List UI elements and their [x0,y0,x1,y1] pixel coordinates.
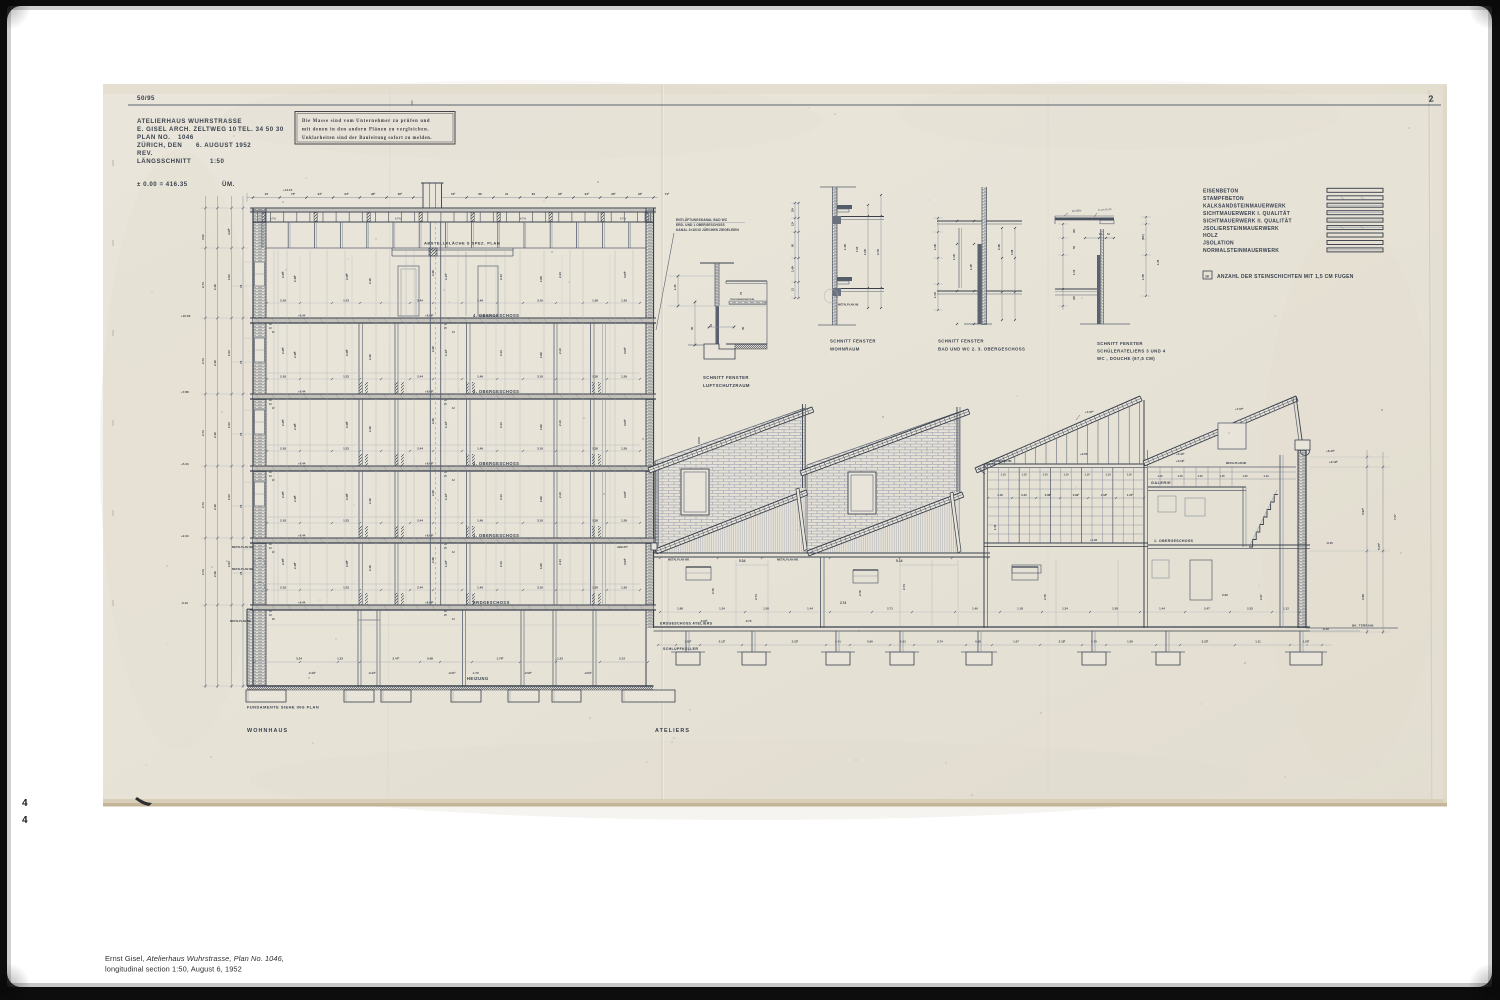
svg-text:1.29: 1.29 [621,447,627,451]
svg-text:2.45ᵏ: 2.45ᵏ [281,346,285,354]
svg-text:56: 56 [1072,246,1076,249]
svg-text:-0.44ᵏ: -0.44ᵏ [368,671,377,675]
svg-text:1.13ᵏ: 1.13ᵏ [952,254,956,260]
svg-text:1.23: 1.23 [343,375,349,379]
svg-text:E. GISEL ARCH. ZELTWEG 10: E. GISEL ARCH. ZELTWEG 10 [137,126,237,133]
svg-text:2.76: 2.76 [1043,594,1047,600]
svg-text:BETONWAND NR.: BETONWAND NR. [990,459,1012,463]
svg-text:BAD UND WC 2. 3. OBERGESCHOSS: BAD UND WC 2. 3. OBERGESCHOSS [938,347,1025,352]
svg-text:2.18: 2.18 [368,565,372,571]
svg-text:1.45: 1.45 [1242,474,1248,478]
svg-text:74: 74 [239,360,243,364]
svg-text:1.15: 1.15 [1157,474,1163,478]
svg-text:0.40: 0.40 [1021,493,1027,497]
svg-text:1.40ᵏ: 1.40ᵏ [791,266,795,272]
svg-text:2.18ᵏ: 2.18ᵏ [293,422,297,430]
svg-text:2.18: 2.18 [213,571,217,577]
svg-text:+8.68ᵏ: +8.68ᵏ [425,314,434,318]
svg-text:1.58: 1.58 [1112,607,1118,611]
svg-text:1.10ᵏ: 1.10ᵏ [1127,493,1133,497]
svg-text:2.14: 2.14 [499,350,503,356]
svg-text:2.14: 2.14 [558,420,562,426]
svg-text:1.49: 1.49 [477,586,483,590]
svg-text:2.14: 2.14 [558,559,562,565]
svg-text:1.13ᵏ: 1.13ᵏ [444,272,448,280]
svg-text:35: 35 [741,326,745,330]
svg-text:1.49: 1.49 [477,519,483,523]
svg-text:3.03ᵏ: 3.03ᵏ [623,346,627,354]
svg-text:METALPLAN NR.: METALPLAN NR. [230,619,252,623]
svg-text:5.05ᵏ: 5.05ᵏ [1377,542,1381,550]
svg-text:2.18: 2.18 [368,426,372,432]
svg-text:2.18: 2.18 [213,432,217,438]
svg-text:10: 10 [1107,232,1110,236]
svg-text:1.10: 1.10 [1021,473,1027,477]
svg-text:1.15: 1.15 [1219,474,1225,478]
svg-text:1.88: 1.88 [539,276,543,282]
svg-text:2.38ᵏ: 2.38ᵏ [345,492,349,500]
svg-text:6.7%: 6.7% [520,217,527,221]
svg-text:2.23ᵏ: 2.23ᵏ [1303,640,1311,644]
svg-text:1.10: 1.10 [1063,473,1069,477]
svg-text:1.29: 1.29 [621,375,627,379]
svg-text:PLAN NO.: PLAN NO. [137,134,171,141]
svg-text:-0.13: -0.13 [181,601,188,605]
svg-text:2.18: 2.18 [368,498,372,504]
svg-text:88: 88 [478,192,482,196]
svg-text:1.07: 1.07 [1013,640,1019,644]
svg-text:3.10: 3.10 [537,586,543,590]
svg-text:+2.05: +2.05 [1080,452,1088,456]
svg-text:2.18: 2.18 [368,354,372,360]
svg-text:+1.03: +1.03 [1090,538,1098,542]
svg-text:STAMPFBETON: STAMPFBETON [1203,196,1244,202]
svg-text:1.38: 1.38 [592,299,598,303]
svg-text:2.38ᵏ: 2.38ᵏ [345,272,349,280]
svg-text:1.49: 1.49 [477,299,483,303]
svg-text:+14.15: +14.15 [283,188,293,192]
svg-text:1.13ᵏ: 1.13ᵏ [444,559,448,567]
svg-text:0.98: 0.98 [427,657,433,661]
svg-text:84: 84 [532,192,536,196]
svg-text:1.23: 1.23 [343,299,349,303]
svg-text:+8.44: +8.44 [298,390,306,394]
svg-text:FUNDAMENTE SIEHE ING PLAN: FUNDAMENTE SIEHE ING PLAN [247,705,319,710]
svg-text:1. OBERGESCHOSS: 1. OBERGESCHOSS [1154,539,1194,543]
svg-text:3.10: 3.10 [537,447,543,451]
svg-text:45ᵏ: 45ᵏ [1072,229,1076,233]
svg-text:2.74: 2.74 [937,640,943,644]
svg-text:+7.88: +7.88 [181,390,189,394]
svg-text:-2.52ᵏ: -2.52ᵏ [524,671,533,675]
svg-text:6.7%: 6.7% [620,217,627,221]
svg-text:1.53: 1.53 [227,561,231,567]
svg-text:80: 80 [791,244,795,247]
svg-text:4: 4 [22,815,28,826]
svg-text:3.03ᵏ: 3.03ᵏ [623,270,627,278]
svg-text:1.44: 1.44 [807,607,813,611]
svg-text:16: 16 [1205,275,1209,279]
svg-text:3.03ᵏ: 3.03ᵏ [623,557,627,565]
svg-text:1.18ᵏ: 1.18ᵏ [933,244,937,250]
svg-text:-0.70: -0.70 [745,619,752,623]
svg-text:2.44: 2.44 [417,586,423,590]
svg-text:1.23: 1.23 [343,519,349,523]
svg-text:+2.19ᵏ: +2.19ᵏ [1329,460,1339,464]
svg-text:-2.21ᵏ: -2.21ᵏ [448,671,457,675]
svg-text:REV.: REV. [137,150,153,157]
svg-text:2.76: 2.76 [858,590,862,596]
svg-text:-1.70: -1.70 [472,671,479,675]
svg-text:longitudinal section 1:50, Aug: longitudinal section 1:50, August 6, 195… [105,965,242,974]
svg-text:ENTLÜFTUNGSKANAL BAD WC: ENTLÜFTUNGSKANAL BAD WC [676,217,728,222]
svg-text:2.74: 2.74 [201,282,205,288]
svg-text:2.23ᵏ: 2.23ᵏ [792,640,800,644]
svg-text:6.7%: 6.7% [395,217,402,221]
svg-text:WOHNRAUM: WOHNRAUM [830,347,860,352]
svg-text:1.10: 1.10 [1072,269,1076,275]
svg-text:2.74: 2.74 [840,601,846,605]
svg-text:1:50: 1:50 [210,158,224,165]
svg-text:2.44: 2.44 [417,519,423,523]
svg-text:TEL. 34 50 30: TEL. 34 50 30 [238,126,284,133]
svg-text:+8.68ᵏ: +8.68ᵏ [425,462,434,466]
svg-text:2.38ᵏ: 2.38ᵏ [345,348,349,356]
svg-text:SCHNITT FENSTER: SCHNITT FENSTER [938,339,984,344]
svg-text:-2.64ᵏ: -2.64ᵏ [584,671,593,675]
svg-text:2.98: 2.98 [1361,594,1365,600]
svg-text:Ernst Gisel, Atelierhaus Wuhrs: Ernst Gisel, Atelierhaus Wuhrstrasse, Pl… [105,954,284,963]
svg-text:2.12ᵏ: 2.12ᵏ [719,640,727,644]
svg-text:METALPLAN 98.: METALPLAN 98. [838,303,859,307]
svg-text:2.14: 2.14 [499,422,503,428]
svg-text:2.48: 2.48 [431,557,435,563]
svg-text:HOLZ: HOLZ [1203,233,1218,239]
svg-text:75: 75 [739,291,743,295]
svg-text:2.76: 2.76 [711,588,715,594]
svg-text:2.45ᵏ: 2.45ᵏ [281,490,285,498]
svg-text:12ᵏ: 12ᵏ [791,222,795,226]
svg-text:2.18ᵏ: 2.18ᵏ [1059,640,1067,644]
svg-text:1.18: 1.18 [1017,607,1023,611]
svg-text:1.10: 1.10 [1126,473,1132,477]
svg-text:4: 4 [22,798,28,809]
svg-text:1.29: 1.29 [621,519,627,523]
svg-text:NORMALSTEINMAUERWERK: NORMALSTEINMAUERWERK [1203,248,1279,254]
svg-text:GALERIE: GALERIE [1151,480,1171,485]
svg-text:2.47: 2.47 [1204,607,1210,611]
svg-text:METALPLAN NR.: METALPLAN NR. [232,545,254,549]
svg-text:+8.44: +8.44 [298,601,306,605]
svg-text:1.10: 1.10 [1000,473,1006,477]
svg-text:2.48: 2.48 [431,490,435,496]
svg-text:2.45ᵏ: 2.45ᵏ [281,270,285,278]
svg-text:2.44: 2.44 [417,299,423,303]
svg-text:1.40: 1.40 [972,607,978,611]
svg-text:2.14: 2.14 [499,494,503,500]
svg-text:2.13: 2.13 [619,657,625,661]
svg-text:± 0.00 = 416.35: ± 0.00 = 416.35 [137,181,188,188]
svg-text:1.53: 1.53 [227,494,231,500]
svg-text:LÄNGSSCHNITT: LÄNGSSCHNITT [137,158,191,165]
svg-text:2.48: 2.48 [431,346,435,352]
svg-text:2.32: 2.32 [1247,607,1253,611]
svg-text:+8.44: +8.44 [298,534,306,538]
svg-text:1.88: 1.88 [539,496,543,502]
svg-text:METALPLAN NR: METALPLAN NR [1226,461,1246,465]
svg-text:1.53: 1.53 [227,350,231,356]
svg-text:1.23: 1.23 [337,657,343,661]
svg-text:0.99ᵏ: 0.99ᵏ [1073,493,1079,497]
svg-text:1.53: 1.53 [227,422,231,428]
svg-text:(95ᵏ): (95ᵏ) [1141,234,1145,240]
svg-text:2.18: 2.18 [213,284,217,290]
svg-text:2.18: 2.18 [280,519,286,523]
svg-text:1.38: 1.38 [592,586,598,590]
svg-text:2.45ᵏ: 2.45ᵏ [281,557,285,565]
svg-text:1.23: 1.23 [557,657,563,661]
svg-text:2.44: 2.44 [417,375,423,379]
svg-text:6.7%: 6.7% [270,217,277,221]
svg-text:SCHNITT FENSTER: SCHNITT FENSTER [1097,341,1143,346]
svg-text:3.03ᵏ: 3.03ᵏ [623,490,627,498]
svg-text:1.13: 1.13 [1263,474,1269,478]
svg-text:1.76ᵏ: 1.76ᵏ [497,657,505,661]
svg-text:74: 74 [239,284,243,288]
svg-text:1.45: 1.45 [993,524,997,530]
svg-text:12: 12 [791,288,795,291]
svg-text:1.15: 1.15 [1177,474,1183,478]
svg-text:1.10: 1.10 [1105,473,1111,477]
svg-text:6. AUGUST 1952: 6. AUGUST 1952 [196,142,251,149]
svg-text:LUFTSCHUTZRAUM: LUFTSCHUTZRAUM [703,383,750,388]
svg-text:-2.43ᵏ: -2.43ᵏ [308,671,317,675]
svg-text:ATELIERS: ATELIERS [655,728,690,734]
svg-text:+6.44ᵏ: +6.44ᵏ [1326,449,1336,453]
svg-text:BK. TERRAIN: BK. TERRAIN [1352,624,1374,628]
svg-text:0.90: 0.90 [867,640,873,644]
svg-text:43ᵏ: 43ᵏ [1072,296,1076,300]
svg-text:2.18: 2.18 [213,360,217,366]
svg-text:74: 74 [239,504,243,508]
svg-text:3.23ᵏ: 3.23ᵏ [1202,640,1210,644]
svg-text:1.88: 1.88 [539,424,543,430]
svg-text:1.34: 1.34 [719,607,725,611]
svg-text:1.38: 1.38 [592,447,598,451]
svg-text:1.10: 1.10 [1042,473,1048,477]
svg-text:2.47ᵏ: 2.47ᵏ [393,657,401,661]
svg-text:2.18ᵏ: 2.18ᵏ [293,494,297,502]
svg-text:2.38ᵏ: 2.38ᵏ [345,559,349,567]
svg-text:1.49: 1.49 [477,447,483,451]
svg-text:7.07: 7.07 [1393,514,1397,520]
svg-text:+2.19ᵏ: +2.19ᵏ [1176,459,1185,463]
svg-text:1.44: 1.44 [1159,607,1165,611]
svg-text:JSOLATION: JSOLATION [1203,241,1234,247]
svg-text:1.03: 1.03 [855,246,859,252]
svg-text:EISENBETON: EISENBETON [1203,189,1239,195]
svg-text:1.49: 1.49 [477,375,483,379]
svg-text:METALPLAN NR.: METALPLAN NR. [777,558,799,562]
svg-text:2.14: 2.14 [499,561,503,567]
svg-text:1.15: 1.15 [1197,474,1203,478]
svg-text:2.32: 2.32 [1222,593,1228,597]
svg-text:1.45: 1.45 [673,284,677,290]
svg-text:5.34: 5.34 [896,559,903,563]
svg-text:2.14: 2.14 [558,492,562,498]
svg-text:2.74: 2.74 [201,569,205,575]
svg-text:HEIZUNG: HEIZUNG [467,676,489,681]
svg-text:2.18: 2.18 [213,504,217,510]
svg-text:SCHÜLERATELIERS 3 UND 4: SCHÜLERATELIERS 3 UND 4 [1097,349,1166,354]
svg-text:+8.68ᵏ: +8.68ᵏ [425,601,434,605]
svg-text:SICHTMAUERWERK II. QUALITÄT: SICHTMAUERWERK II. QUALITÄT [1203,217,1292,224]
svg-text:1.29: 1.29 [621,299,627,303]
svg-text:35: 35 [690,326,694,330]
svg-text:0.98ᵏ: 0.98ᵏ [1045,493,1051,497]
svg-text:2.74: 2.74 [201,358,205,364]
svg-text:2.18ᵏ: 2.18ᵏ [293,561,297,569]
svg-text:+5.44: +5.44 [181,462,189,466]
svg-text:Die Masse sind vom Unternehmer: Die Masse sind vom Unternehmer zu prüfen… [302,119,430,124]
svg-text:1.38: 1.38 [592,519,598,523]
svg-text:1.10: 1.10 [1084,473,1090,477]
svg-text:+8.44: +8.44 [298,314,306,318]
svg-text:ZÜRICH, DEN: ZÜRICH, DEN [137,142,182,149]
svg-text:2.48: 2.48 [431,270,435,276]
svg-text:2.14: 2.14 [558,348,562,354]
svg-text:1.18: 1.18 [997,493,1003,497]
svg-text:1.13ᵏ: 1.13ᵏ [444,420,448,428]
svg-text:2.44: 2.44 [417,447,423,451]
svg-text:Unklarheiten sind der Bauleitu: Unklarheiten sind der Bauleitung sofort … [302,136,432,141]
svg-text:1.13ᵏ: 1.13ᵏ [444,492,448,500]
svg-text:ERD- UND 1 OBERGESCHOSS: ERD- UND 1 OBERGESCHOSS [676,223,725,227]
svg-text:+5.44ᵏ: +5.44ᵏ [1176,452,1185,456]
svg-text:METALPLAN NR.: METALPLAN NR. [668,558,690,562]
svg-text:1.58: 1.58 [763,607,769,611]
svg-text:50/95: 50/95 [137,95,155,102]
svg-text:ANZAHL DER STEINSCHICHTEN M: ANZAHL DER STEINSCHICHTEN MIT 1,5 CM FUG… [1217,274,1354,280]
svg-text:SCHLUPFKELLER: SCHLUPFKELLER [663,647,698,651]
svg-text:2.74: 2.74 [201,502,205,508]
svg-text:4.22ᵏ: 4.22ᵏ [227,227,231,235]
svg-text:2.74: 2.74 [902,584,906,590]
svg-text:1.88: 1.88 [539,352,543,358]
svg-text:2.18ᵏ: 2.18ᵏ [293,274,297,282]
svg-text:SICHTMAUERWERK I. QUALITÄT: SICHTMAUERWERK I. QUALITÄT [1203,210,1290,217]
svg-text:Gefälle: Gefälle [1072,208,1082,213]
svg-text:3.52: 3.52 [201,234,205,240]
svg-text:3.92ᵏ: 3.92ᵏ [1361,507,1365,515]
svg-text:23: 23 [265,192,269,196]
svg-text:1.34: 1.34 [1062,607,1068,611]
svg-text:2.47: 2.47 [1259,594,1263,600]
svg-text:2.18: 2.18 [368,278,372,284]
svg-text:1.29: 1.29 [621,586,627,590]
svg-text:WC , DOUCHE (67,5 CM): WC , DOUCHE (67,5 CM) [1097,356,1155,361]
svg-text:1.45ᵏ: 1.45ᵏ [969,264,973,270]
svg-text:2.14: 2.14 [558,272,562,278]
svg-text:2.73ᵏ: 2.73ᵏ [876,249,880,255]
svg-text:ATELIERHAUS WUHRSTRASSE: ATELIERHAUS WUHRSTRASSE [137,118,242,125]
svg-text:1.38: 1.38 [592,375,598,379]
svg-text:1.35: 1.35 [1156,259,1160,265]
svg-text:1.23: 1.23 [343,586,349,590]
svg-text:1.13ᵏ: 1.13ᵏ [444,348,448,356]
svg-text:mit denen in den andern Plänen: mit denen in den andern Plänen zu vergle… [302,128,429,133]
svg-text:1.88: 1.88 [1010,249,1014,255]
svg-text:2.18: 2.18 [280,375,286,379]
svg-text:2.18: 2.18 [280,299,286,303]
svg-text:2.18ᵏ: 2.18ᵏ [293,350,297,358]
svg-text:1.35ᵏ: 1.35ᵏ [1141,274,1145,280]
svg-text:+8.44: +8.44 [298,462,306,466]
svg-text:TROCKNUNGSDECKEL: TROCKNUNGSDECKEL [730,299,755,301]
svg-text:3.03ᵏ: 3.03ᵏ [623,418,627,426]
svg-text:2.45ᵏ: 2.45ᵏ [281,418,285,426]
svg-text:METALPLAN NR.: METALPLAN NR. [232,567,254,571]
svg-text:SCHNITT FENSTER: SCHNITT FENSTER [703,375,749,380]
svg-text:+10.59: +10.59 [181,314,191,318]
svg-text:1.03ᵏ: 1.03ᵏ [863,249,867,255]
svg-text:-0.15: -0.15 [1326,541,1333,545]
svg-text:20ᵏ: 20ᵏ [791,208,795,212]
svg-text:3.10: 3.10 [537,519,543,523]
svg-text:WOHNHAUS: WOHNHAUS [247,728,288,734]
svg-text:74: 74 [239,571,243,575]
svg-text:+7.07ᵏ: +7.07ᵏ [1235,407,1244,411]
svg-text:3.10: 3.10 [537,299,543,303]
svg-text:+7.07ᵏ: +7.07ᵏ [1085,410,1095,414]
svg-text:2.18: 2.18 [280,447,286,451]
svg-text:SCHNITT FENSTER: SCHNITT FENSTER [830,339,876,344]
svg-text:1.53: 1.53 [227,274,231,280]
svg-text:2.48ᵏ: 2.48ᵏ [997,244,1001,250]
svg-text:2.74: 2.74 [201,430,205,436]
svg-text:ABLUFT: ABLUFT [617,545,628,549]
svg-text:1.45ᵏ: 1.45ᵏ [843,244,847,250]
svg-text:5.34: 5.34 [739,559,746,563]
svg-text:1.11: 1.11 [1255,640,1261,644]
svg-text:2.48: 2.48 [431,418,435,424]
svg-text:+8.68ᵏ: +8.68ᵏ [425,390,434,394]
svg-text:JSOLIERSTEINMAUERWERK: JSOLIERSTEINMAUERWERK [1203,226,1279,232]
svg-text:1046: 1046 [178,134,194,141]
svg-text:3.34: 3.34 [296,657,302,661]
svg-text:3.10: 3.10 [537,375,543,379]
svg-text:ÜM.: ÜM. [222,181,235,188]
svg-text:1.23: 1.23 [343,447,349,451]
svg-text:31: 31 [505,192,509,196]
svg-text:1.98: 1.98 [677,607,683,611]
svg-text:2.74: 2.74 [754,594,758,600]
svg-text:2.14: 2.14 [499,274,503,280]
svg-text:+2.44: +2.44 [181,534,189,538]
svg-text:-0.03ᵏ: -0.03ᵏ [700,619,707,623]
svg-text:1.18ᵏ: 1.18ᵏ [1101,493,1107,497]
svg-text:1.12: 1.12 [1283,607,1289,611]
svg-text:+8.68ᵏ: +8.68ᵏ [425,534,434,538]
svg-text:2.71: 2.71 [887,607,893,611]
svg-text:1.13ᵏ: 1.13ᵏ [933,292,937,298]
svg-text:1.36: 1.36 [1127,640,1133,644]
svg-text:KALKSANDSTEINMAUERWERK: KALKSANDSTEINMAUERWERK [1203,203,1286,209]
svg-text:-0.10: -0.10 [1322,627,1329,631]
svg-text:2.38ᵏ: 2.38ᵏ [345,420,349,428]
svg-text:KANAL 2×10/15 JÜRCHEN ZIEGELEI: KANAL 2×10/15 JÜRCHEN ZIEGELEIEN [676,227,740,232]
svg-text:2.18: 2.18 [280,586,286,590]
